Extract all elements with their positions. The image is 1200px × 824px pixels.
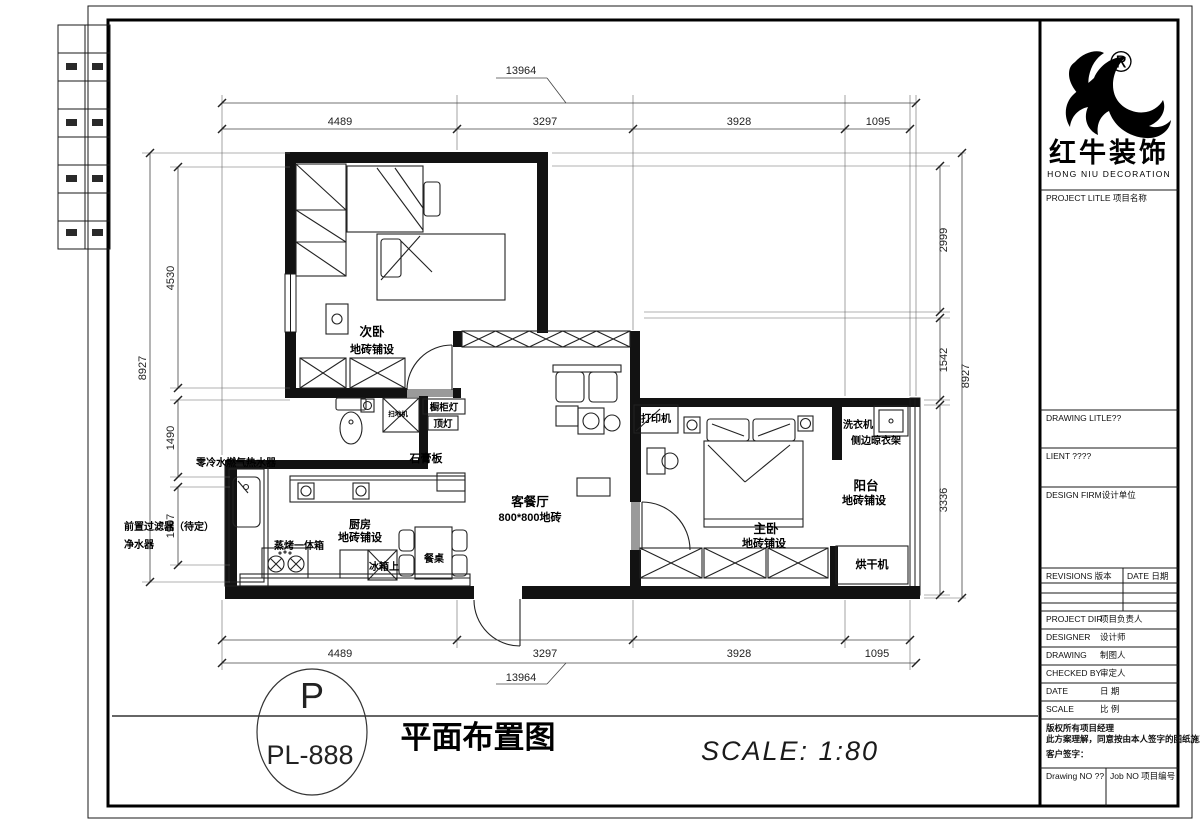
tb-row-en: PROJECT DIR — [1046, 614, 1103, 624]
sofa-group — [553, 365, 621, 496]
logo-sub: HONG NIU DECORATION — [1047, 169, 1171, 179]
bed-bedroom2-a — [347, 166, 440, 232]
dim-top-3: 3928 — [727, 116, 751, 128]
tb-row-cn: 制图人 — [1100, 650, 1126, 660]
tb-job-no: Job NO 项目编号 — [1110, 771, 1175, 781]
sheet-scale: SCALE: 1:80 — [701, 736, 879, 766]
label-washer: 洗衣机 — [843, 418, 873, 431]
tb-date-header: DATE 日期 — [1127, 571, 1168, 581]
walls — [225, 152, 920, 599]
label-purifier: 净水器 — [124, 538, 155, 551]
label-dining-table: 餐桌 — [423, 552, 444, 565]
sheet-code-letter: P — [300, 675, 324, 716]
dim-bottom-4: 1095 — [865, 648, 889, 660]
hongniu-logo: ® 红牛装饰 HONG NIU DECORATION — [1047, 46, 1171, 179]
desk-bedroom2 — [326, 304, 348, 334]
label-printer: 打印机 — [641, 412, 671, 425]
label-bedroom2: 次卧 — [359, 324, 385, 339]
tb-revisions: REVISIONS 版本 — [1046, 571, 1112, 581]
label-dryer: 烘干机 — [856, 557, 889, 571]
label-living-floor: 800*800地砖 — [499, 510, 562, 524]
plan-labels: 次卧 地砖铺设 客餐厅 800*800地砖 主卧 地砖铺设 阳台 地砖铺设 厨房… — [124, 324, 901, 573]
dim-bottom-2: 3297 — [533, 648, 557, 660]
tb-note2: 此方案理解，同意按由本人签字的图纸施工； — [1046, 734, 1200, 745]
door-bedroom2 — [407, 345, 452, 390]
tb-row-en: DATE — [1046, 686, 1068, 696]
bed-master — [704, 419, 803, 527]
dim-right-overall: 8927 — [960, 364, 972, 388]
label-kitchen-floor: 地砖铺设 — [338, 530, 383, 544]
wardrobe-bedroom2 — [296, 164, 346, 276]
cabinet-bedroom2 — [300, 358, 405, 388]
dim-right-2: 1542 — [938, 348, 950, 372]
floorplan-canvas: ® 红牛装饰 HONG NIU DECORATION PROJECT LITLE… — [0, 0, 1200, 824]
dim-left-overall: 8927 — [137, 356, 149, 380]
wardrobe-master — [640, 548, 828, 578]
bed-bedroom2-b — [377, 234, 505, 300]
tb-row-en: SCALE — [1046, 704, 1074, 714]
label-fridge: 冰箱上 — [369, 560, 399, 573]
tb-client: LIENT ???? — [1046, 451, 1091, 461]
sheet-code: PL-888 — [266, 740, 353, 770]
dim-top-overall: 13964 — [506, 65, 537, 77]
label-balcony-floor: 地砖铺设 — [842, 493, 887, 507]
sheet-title: 平面布置图 — [401, 720, 556, 755]
tb-row-en: CHECKED BY — [1046, 668, 1102, 678]
tb-row-cn: 审定人 — [1100, 668, 1126, 678]
tb-design-firm: DESIGN FIRM设计单位 — [1046, 490, 1136, 500]
title-block: ® 红牛装饰 HONG NIU DECORATION PROJECT LITLE… — [1040, 46, 1200, 806]
dining-set — [399, 527, 467, 579]
label-bedroom2-floor: 地砖铺设 — [350, 342, 395, 356]
label-drying-rack: 侧边晾衣架 — [851, 434, 901, 447]
dim-bottom-3: 3928 — [727, 648, 751, 660]
tb-row-cn: 比 例 — [1100, 704, 1119, 714]
label-vacuum: 扫地机 — [388, 409, 408, 418]
tb-note3: 客户签字： — [1045, 749, 1089, 759]
washing-machine — [874, 406, 908, 436]
tb-drawing-no: Drawing NO ?? — [1046, 771, 1104, 781]
logo-name: 红牛装饰 — [1049, 137, 1169, 168]
drawing-sheet: ® 红牛装饰 HONG NIU DECORATION PROJECT LITLE… — [0, 0, 1200, 824]
dim-left-1: 4530 — [165, 266, 177, 290]
label-master: 主卧 — [753, 521, 779, 536]
dim-bottom-overall: 13964 — [506, 672, 537, 684]
tb-row-cn: 设计师 — [1100, 632, 1126, 642]
threshold-bedroom2 — [407, 389, 453, 397]
tb-project-title: PROJECT LITLE 项目名称 — [1046, 193, 1147, 203]
dim-bottom-1: 4489 — [328, 648, 352, 660]
threshold-master — [631, 502, 640, 550]
label-master-floor: 地砖铺设 — [742, 536, 787, 550]
dim-right-3: 3336 — [938, 488, 950, 512]
tb-drawing-title: DRAWING LITLE?? — [1046, 413, 1122, 423]
sheet-footer: P PL-888 平面布置图 SCALE: 1:80 — [112, 669, 1038, 795]
label-prefilter: 前置过滤器（待定） — [124, 520, 214, 533]
tb-note1: 版权所有项目经理 — [1045, 723, 1115, 733]
label-ceiling-light: 顶灯 — [433, 418, 453, 430]
downlight-icon — [298, 399, 374, 499]
door-master — [642, 502, 690, 550]
label-water-heater: 零冷水燃气热水器 — [195, 456, 277, 469]
hall-cabinet — [290, 473, 465, 502]
label-living: 客餐厅 — [510, 494, 549, 509]
tb-row-cn: 日 期 — [1100, 686, 1119, 696]
tb-row-cn: 项目负责人 — [1100, 614, 1143, 624]
dim-top-1: 4489 — [328, 116, 352, 128]
tb-row-en: DRAWING — [1046, 650, 1087, 660]
dim-right-1: 2999 — [938, 228, 950, 252]
dim-top-4: 1095 — [866, 116, 890, 128]
signoff-strip — [58, 25, 110, 249]
door-entry — [474, 599, 520, 646]
label-gypsum: 石膏板 — [409, 451, 444, 465]
label-steam-oven: 蒸烤一体箱 — [274, 539, 324, 552]
label-balcony: 阳台 — [853, 478, 878, 493]
dim-left-2: 1490 — [165, 426, 177, 450]
window-hatch — [462, 331, 630, 347]
label-cabinet-light: 橱柜灯 — [430, 402, 459, 414]
label-kitchen: 厨房 — [349, 517, 371, 531]
tb-row-en: DESIGNER — [1046, 632, 1090, 642]
dim-top-2: 3297 — [533, 116, 557, 128]
furniture — [225, 164, 908, 586]
